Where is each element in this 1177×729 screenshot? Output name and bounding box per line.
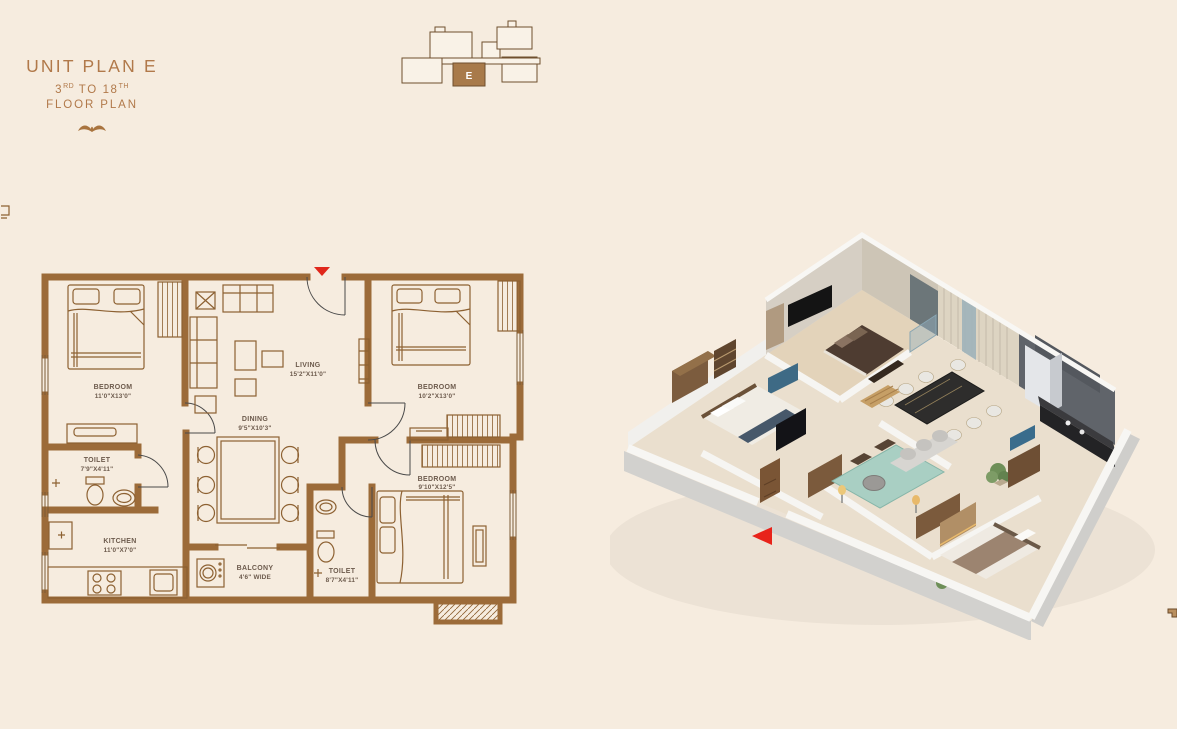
floor-lamp-1	[838, 485, 846, 495]
floors-prefix: 3	[55, 84, 63, 96]
svg-text:BALCONY: BALCONY	[237, 565, 274, 572]
bedroom3-furniture	[377, 445, 500, 583]
room-label-living: LIVING 15'2"X11'0"	[290, 362, 327, 378]
room-label-balcony: BALCONY 4'6" WIDE	[237, 565, 274, 581]
toilet1-fixtures	[52, 477, 135, 506]
bedroom1-furniture	[67, 282, 182, 443]
svg-text:BEDROOM: BEDROOM	[418, 384, 457, 391]
room-labels: BEDROOM 11'0"X13'0" LIVING 15'2"X11'0" B…	[81, 362, 457, 584]
toilet2-fixtures	[314, 500, 336, 577]
bird-motif-icon	[77, 121, 107, 134]
room-label-dining: DINING 9'5"X10'3"	[238, 416, 271, 432]
entry-marker-icon	[314, 267, 330, 276]
svg-text:BEDROOM: BEDROOM	[418, 476, 457, 483]
svg-text:7'9"X4'11": 7'9"X4'11"	[81, 466, 114, 473]
room-label-toilet2: TOILET 8'7"X4'11"	[326, 568, 359, 584]
room-label-bedroom1: BEDROOM 11'0"X13'0"	[94, 384, 133, 400]
utility-ledge	[436, 602, 500, 622]
balcony-fixtures	[197, 559, 224, 587]
balcony-slider	[215, 545, 280, 548]
svg-text:10'2"X13'0": 10'2"X13'0"	[419, 393, 456, 400]
left-edge-artifact	[0, 200, 14, 224]
bedroom2-furniture	[392, 281, 520, 440]
svg-text:BEDROOM: BEDROOM	[94, 384, 133, 391]
key-plan: E	[395, 10, 545, 98]
room-label-kitchen: KITCHEN 11'0"X7'0"	[103, 538, 136, 554]
floors-subtitle: 3RD TO 18TH	[16, 83, 168, 96]
svg-text:4'6" WIDE: 4'6" WIDE	[239, 574, 271, 581]
page-title: UNIT PLAN E	[16, 56, 168, 77]
living-furniture	[190, 285, 369, 413]
floors-mid: TO 18	[74, 84, 118, 96]
svg-text:11'0"X7'0": 11'0"X7'0"	[104, 547, 137, 554]
svg-text:11'0"X13'0": 11'0"X13'0"	[95, 393, 132, 400]
right-edge-artifact	[1163, 603, 1177, 627]
svg-text:TOILET: TOILET	[329, 568, 356, 575]
svg-text:LIVING: LIVING	[295, 362, 320, 369]
svg-text:KITCHEN: KITCHEN	[103, 538, 136, 545]
svg-text:9'10"X12'5": 9'10"X12'5"	[419, 484, 456, 491]
room-label-bedroom3: BEDROOM 9'10"X12'5"	[418, 476, 457, 491]
floors-ordinal-2: TH	[119, 83, 129, 90]
floors-ordinal-1: RD	[63, 83, 74, 90]
svg-text:15'2"X11'0": 15'2"X11'0"	[290, 371, 327, 378]
floor-plan-2d: BEDROOM 11'0"X13'0" LIVING 15'2"X11'0" B…	[30, 255, 530, 635]
unit-plan-page: UNIT PLAN E 3RD TO 18TH FLOOR PLAN E	[0, 0, 1177, 729]
kitchen-fixtures	[48, 522, 187, 598]
coffee-table	[863, 476, 885, 491]
floor-plan-subtitle: FLOOR PLAN	[16, 99, 168, 111]
floor-lamp-2	[912, 495, 920, 505]
svg-text:DINING: DINING	[242, 416, 269, 423]
unit-e-label: E	[466, 71, 473, 82]
svg-text:9'5"X10'3": 9'5"X10'3"	[238, 425, 271, 432]
svg-text:TOILET: TOILET	[84, 457, 111, 464]
brand-header: UNIT PLAN E 3RD TO 18TH FLOOR PLAN	[16, 56, 168, 139]
floor-plan-3d-render	[610, 230, 1155, 640]
room-label-toilet1: TOILET 7'9"X4'11"	[81, 457, 114, 473]
dining-furniture	[198, 437, 299, 523]
svg-text:8'7"X4'11": 8'7"X4'11"	[326, 577, 359, 584]
room-label-bedroom2: BEDROOM 10'2"X13'0"	[418, 384, 457, 400]
